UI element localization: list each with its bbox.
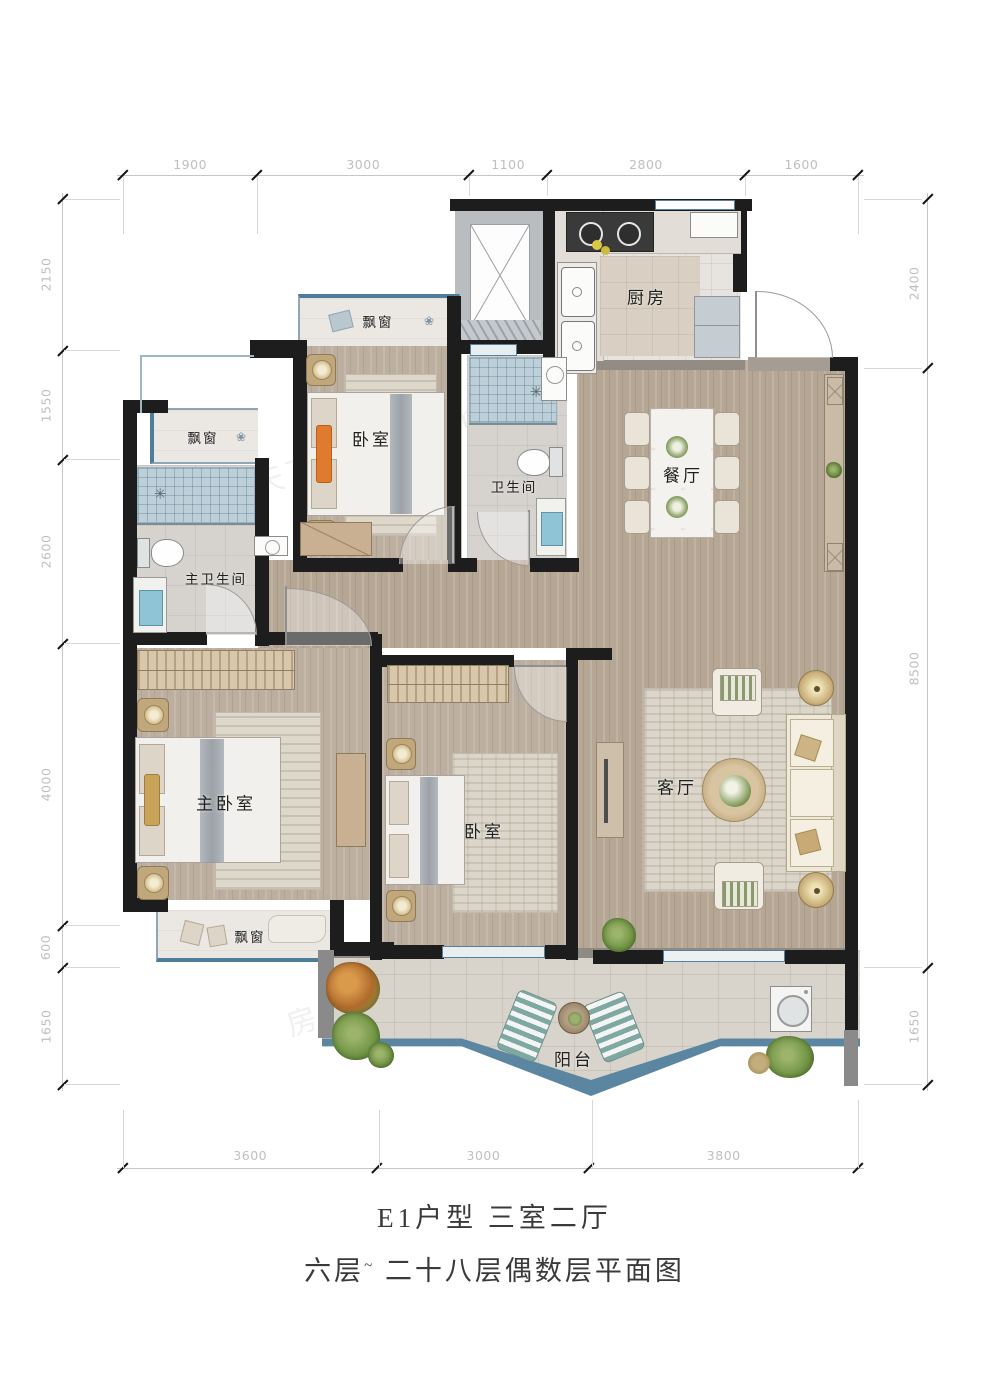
- bedroom-top-label: 卧室: [352, 426, 392, 451]
- plan-title: E1户型 三室二厅 六层~ 二十八层偶数层平面图: [0, 1196, 989, 1288]
- wall: [566, 648, 612, 660]
- dim-value: 1600: [745, 155, 858, 173]
- wall: [530, 558, 579, 572]
- wall: [370, 634, 382, 960]
- washbasin-cabinet: [536, 498, 566, 556]
- dim-value: 3800: [589, 1146, 858, 1164]
- floor-lamp: [798, 872, 834, 908]
- fruit-decor: [601, 246, 610, 255]
- tv-console: [596, 742, 624, 838]
- balcony-table: [558, 1002, 590, 1034]
- dim-value: 1900: [123, 155, 257, 173]
- dim-value: 8500: [907, 652, 922, 686]
- floor-lamp: [798, 670, 834, 706]
- kitchen-threshold: [577, 360, 745, 370]
- title-line2-suffix: 二十八层偶数层平面图: [385, 1256, 685, 1286]
- wall: [845, 357, 858, 1036]
- toilet: [517, 449, 550, 476]
- entry-door-arc: [757, 291, 833, 358]
- wall: [123, 898, 168, 912]
- wardrobe: [387, 665, 509, 703]
- dining-label: 餐厅: [663, 462, 703, 487]
- dimension-left: 2150 1550 2600 4000 600 1650: [36, 199, 68, 1085]
- dim-value: 1100: [469, 155, 547, 173]
- bathroom-window: [470, 344, 517, 356]
- bedside-lamp: [386, 890, 416, 922]
- plant: [368, 1042, 394, 1068]
- dim-value: 2400: [907, 267, 922, 301]
- refrigerator: [694, 296, 740, 358]
- wall: [830, 357, 858, 371]
- living-label: 客厅: [657, 774, 697, 799]
- wall: [545, 945, 578, 959]
- bay-flower-icon: ❀: [424, 314, 434, 328]
- shower-head-icon: ✳: [154, 485, 167, 503]
- wall: [593, 950, 663, 964]
- title-line2-prefix: 六层: [304, 1256, 364, 1286]
- bathroom-label: 卫生间: [491, 476, 538, 496]
- dining-chair: [624, 500, 650, 534]
- shower-glass: [469, 423, 557, 425]
- dining-chair: [714, 500, 740, 534]
- title-line2-sup: ~: [364, 1258, 375, 1274]
- toilet-tank: [137, 538, 150, 568]
- dim-value: 1650: [907, 1010, 922, 1044]
- bedroom-balcony-window: [442, 946, 545, 958]
- stove: [566, 212, 654, 252]
- wall: [330, 942, 394, 956]
- plan-title-line2: 六层~ 二十八层偶数层平面图: [0, 1249, 989, 1288]
- coffee-table: [702, 758, 766, 822]
- armchair: [712, 668, 762, 716]
- wall: [123, 632, 207, 645]
- orange-pillow: [316, 425, 332, 483]
- bedroom-mid-label: 卧室: [464, 818, 504, 843]
- dresser: [300, 522, 372, 556]
- floor-plan-page: 房天下 fang.com 房天下 fang.com 房天下 fang.com 飘…: [0, 0, 989, 1400]
- hall-cabinet: [254, 536, 288, 556]
- plant: [766, 1036, 814, 1078]
- wall: [785, 950, 858, 964]
- bay-window-top-label: 飘窗: [363, 311, 394, 331]
- armchair: [714, 862, 764, 910]
- bedside-lamp: [137, 866, 169, 900]
- wall: [543, 199, 555, 360]
- bedside-lamp: [386, 738, 416, 770]
- washing-machine: [770, 986, 812, 1032]
- plant-small: [748, 1052, 770, 1074]
- bedside-lamp: [137, 698, 169, 732]
- dim-value: 1550: [39, 389, 54, 423]
- toilet: [151, 539, 184, 567]
- dining-chair: [624, 456, 650, 490]
- bay-window-left-label: 飘窗: [188, 427, 219, 447]
- master-wardrobe: [137, 650, 295, 690]
- plant-orange: [326, 962, 380, 1014]
- bathroom-vanity: [541, 357, 567, 401]
- plant: [602, 918, 636, 952]
- dim-value: 2150: [39, 258, 54, 292]
- master-bedroom-label: 主卧室: [196, 790, 256, 815]
- dimension-top: 1900 3000 1100 2800 1600: [123, 155, 858, 185]
- bay-flower-icon: ❀: [236, 430, 246, 444]
- dim-value: 3000: [377, 1146, 589, 1164]
- table-flowers: [666, 436, 688, 458]
- kitchen-window: [655, 200, 735, 210]
- exterior-window-line: [140, 355, 254, 413]
- bed: [307, 392, 445, 516]
- dining-chair: [624, 412, 650, 446]
- dimension-bottom: 3600 3000 3800: [123, 1146, 858, 1172]
- bay-blanket-decor: [268, 915, 326, 943]
- wall: [566, 655, 578, 960]
- washbasin-cabinet: [133, 577, 167, 633]
- bay-pillow: [206, 925, 227, 948]
- toilet-tank: [549, 447, 563, 477]
- dim-value: 1650: [39, 1010, 54, 1044]
- master-bench: [336, 753, 366, 847]
- balcony-pier: [844, 1030, 858, 1086]
- living-balcony-door: [663, 950, 785, 962]
- bay-window-bottom-label: 飘窗: [235, 926, 266, 946]
- dim-value: 3600: [123, 1146, 377, 1164]
- bed: [385, 775, 465, 885]
- elevator-cab: [470, 224, 530, 326]
- dining-chair: [714, 456, 740, 490]
- table-flowers: [666, 496, 688, 518]
- kitchen-cabinet: [690, 212, 738, 238]
- balcony-label: 阳台: [554, 1046, 594, 1071]
- dim-value: 2600: [39, 535, 54, 569]
- dim-value: 2800: [547, 155, 745, 173]
- bedside-lamp: [306, 354, 336, 386]
- shower-glass: [137, 523, 255, 525]
- wall: [293, 558, 403, 572]
- dim-value: 600: [39, 935, 54, 960]
- kitchen-label: 厨房: [627, 284, 667, 309]
- sofa: [786, 714, 846, 872]
- dim-value: 3000: [257, 155, 469, 173]
- plan-title-line1: E1户型 三室二厅: [0, 1196, 989, 1235]
- sideboard-plant: [826, 462, 842, 478]
- gold-pillow: [144, 774, 160, 826]
- dim-value: 4000: [39, 768, 54, 802]
- dining-chair: [714, 412, 740, 446]
- dimension-right: 2400 8500 1650: [905, 199, 939, 1085]
